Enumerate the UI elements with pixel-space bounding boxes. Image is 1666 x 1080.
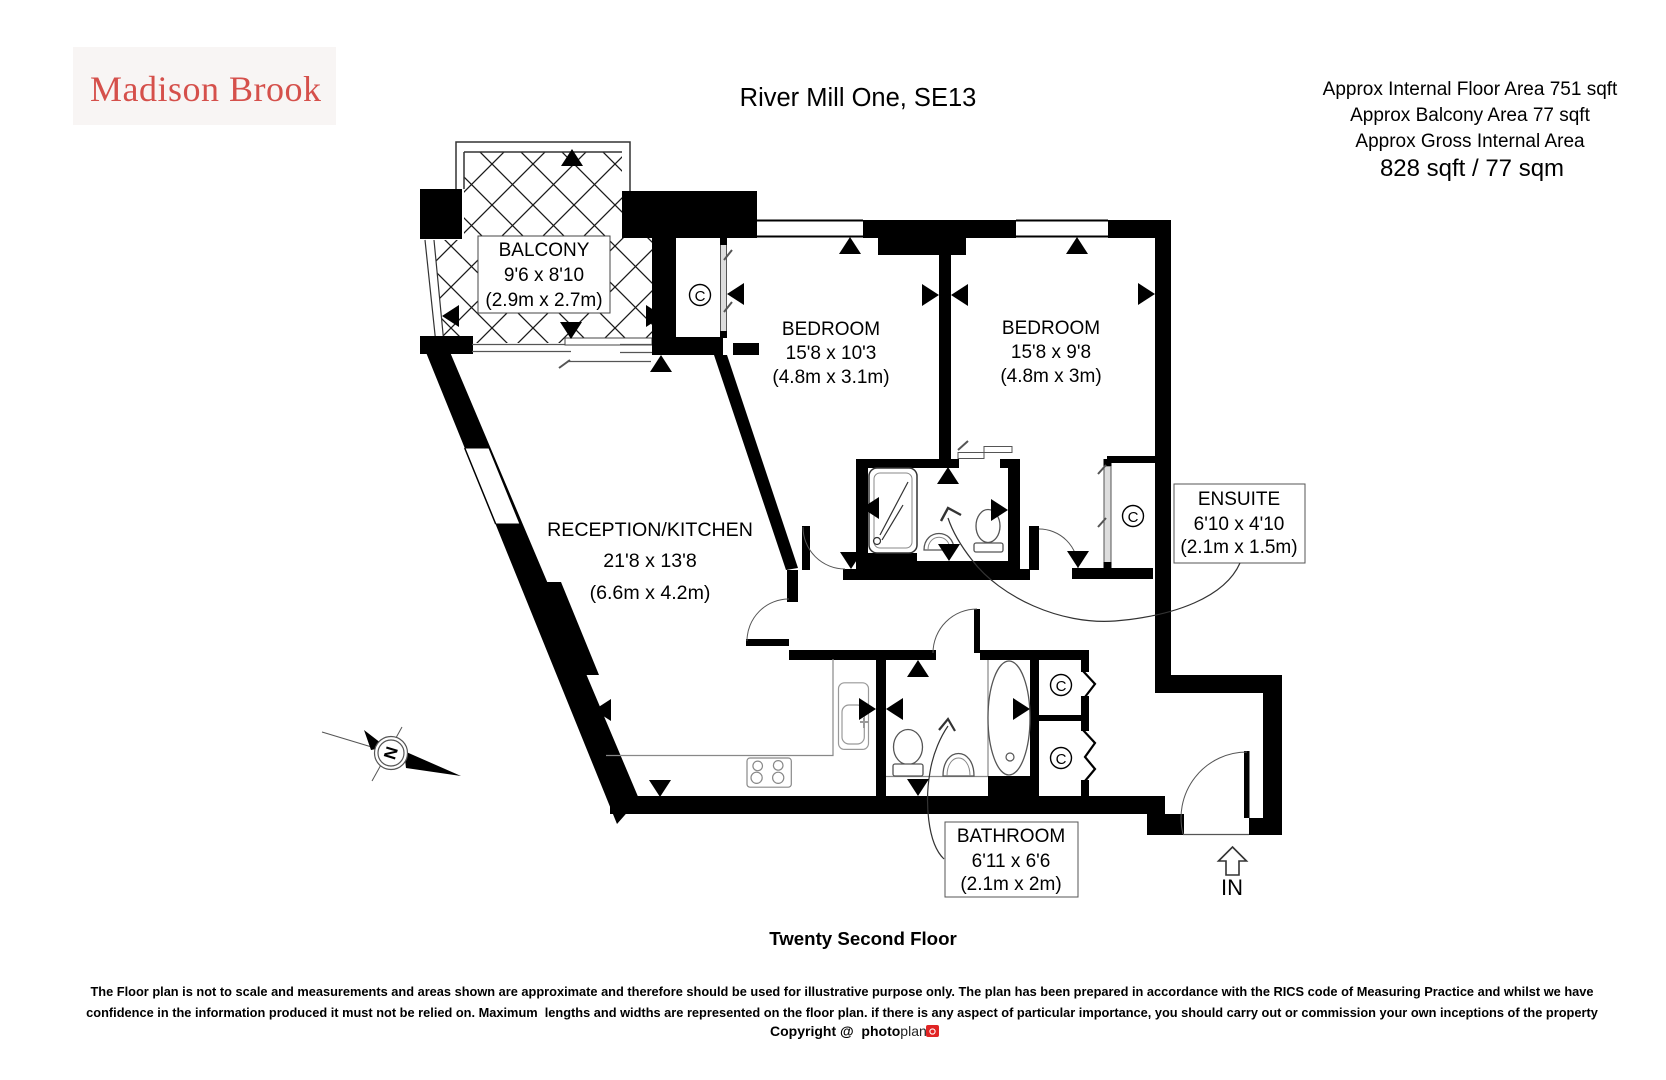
svg-text:BATHROOM: BATHROOM bbox=[957, 826, 1065, 847]
svg-text:Twenty Second Floor: Twenty Second Floor bbox=[769, 928, 957, 949]
svg-text:15'8 x 10'3: 15'8 x 10'3 bbox=[786, 343, 877, 364]
svg-text:Madison Brook: Madison Brook bbox=[90, 69, 322, 109]
svg-text:Copyright @ photoplan: Copyright @ photoplan bbox=[770, 1023, 927, 1039]
svg-text:(2.1m x 1.5m): (2.1m x 1.5m) bbox=[1180, 537, 1297, 558]
svg-text:(2.1m x 2m): (2.1m x 2m) bbox=[960, 874, 1061, 895]
svg-text:(2.9m x 2.7m): (2.9m x 2.7m) bbox=[485, 290, 602, 311]
svg-text:BEDROOM: BEDROOM bbox=[1002, 318, 1100, 339]
svg-text:BEDROOM: BEDROOM bbox=[782, 319, 880, 340]
svg-text:828 sqft / 77 sqm: 828 sqft / 77 sqm bbox=[1380, 155, 1564, 182]
svg-text:BALCONY: BALCONY bbox=[499, 240, 590, 261]
svg-text:(6.6m x 4.2m): (6.6m x 4.2m) bbox=[590, 582, 711, 604]
svg-text:C: C bbox=[1128, 509, 1139, 526]
svg-text:6'11 x 6'6: 6'11 x 6'6 bbox=[972, 851, 1051, 872]
svg-text:21'8 x 13'8: 21'8 x 13'8 bbox=[603, 550, 697, 572]
svg-text:IN: IN bbox=[1221, 875, 1243, 900]
svg-text:Approx Balcony Area 77 sqft: Approx Balcony Area 77 sqft bbox=[1350, 105, 1590, 126]
svg-text:River Mill One, SE13: River Mill One, SE13 bbox=[740, 84, 977, 112]
svg-text:C: C bbox=[695, 288, 706, 305]
svg-text:The Floor plan is not to scale: The Floor plan is not to scale and measu… bbox=[90, 984, 1593, 999]
svg-text:RECEPTION/KITCHEN: RECEPTION/KITCHEN bbox=[547, 519, 753, 541]
svg-text:15'8 x 9'8: 15'8 x 9'8 bbox=[1011, 342, 1091, 363]
svg-text:confidence in the information: confidence in the information produced i… bbox=[86, 1005, 1599, 1020]
svg-text:Approx Internal Floor Area 751: Approx Internal Floor Area 751 sqft bbox=[1323, 79, 1618, 100]
svg-text:C: C bbox=[1056, 751, 1067, 768]
svg-text:Approx Gross Internal Area: Approx Gross Internal Area bbox=[1355, 131, 1585, 152]
svg-text:6'10 x 4'10: 6'10 x 4'10 bbox=[1194, 514, 1285, 535]
svg-text:ENSUITE: ENSUITE bbox=[1198, 489, 1280, 510]
svg-text:(4.8m x 3.1m): (4.8m x 3.1m) bbox=[772, 367, 889, 388]
svg-text:C: C bbox=[1056, 678, 1067, 695]
svg-text:9'6 x 8'10: 9'6 x 8'10 bbox=[504, 265, 584, 286]
svg-text:(4.8m x 3m): (4.8m x 3m) bbox=[1000, 366, 1101, 387]
